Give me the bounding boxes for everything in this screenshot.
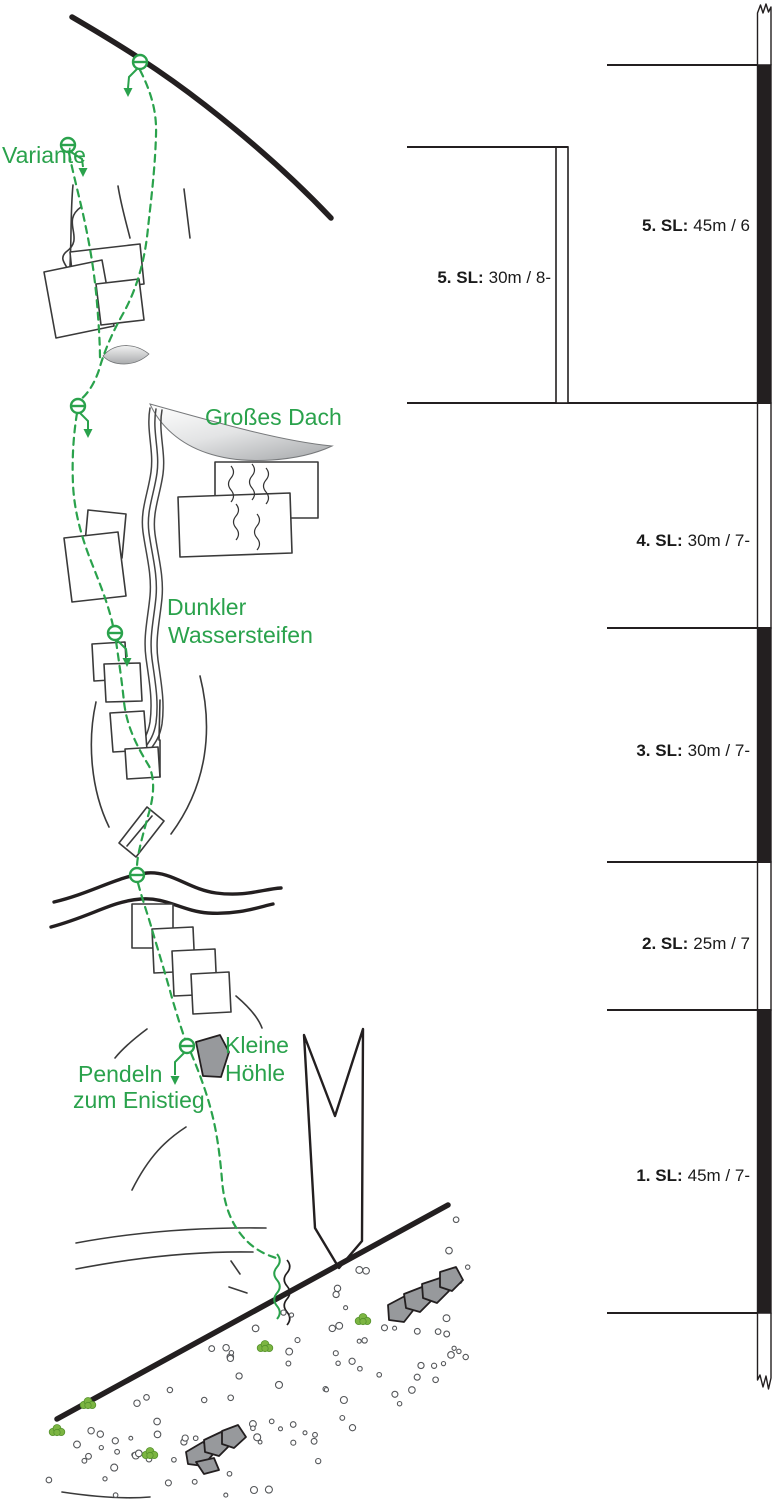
annotation-variante: Variante <box>2 142 86 168</box>
scree-dot <box>377 1373 382 1378</box>
scree-dot <box>291 1440 296 1445</box>
pitch-bar-segment <box>758 65 772 403</box>
arrow-down-icon <box>171 1053 185 1085</box>
scree-dot <box>129 1436 133 1440</box>
scree-dot <box>115 1449 120 1454</box>
scree-dot <box>349 1358 355 1364</box>
scree-dot <box>144 1395 150 1401</box>
annotation-kleine-hoehle: Kleine <box>225 1032 289 1058</box>
scree-dot <box>154 1431 161 1438</box>
scree-dot <box>286 1348 293 1355</box>
scree-dot <box>113 1493 118 1498</box>
annotation-kleine-hoehle: Höhle <box>225 1060 285 1086</box>
bar-bottom-break <box>758 1313 772 1389</box>
belay-ring-icon <box>133 55 148 69</box>
scree-dot <box>392 1391 398 1397</box>
pillar-outline <box>304 1029 363 1268</box>
rock-features <box>44 17 448 1498</box>
lower-band-line <box>76 1228 266 1243</box>
grass-tuft <box>142 1448 158 1459</box>
scree-dot <box>136 1450 143 1457</box>
scree-dot <box>349 1425 355 1431</box>
scree-dot <box>182 1435 188 1441</box>
scree-dot <box>418 1362 424 1368</box>
scree-dot <box>444 1331 450 1337</box>
scree-dot <box>333 1351 338 1356</box>
scree-dot <box>313 1432 318 1437</box>
lower-band-line <box>76 1252 253 1269</box>
scree-dot <box>441 1362 445 1366</box>
annotation-dunkler-wassersteifen: Dunkler <box>167 594 247 620</box>
scree-dot <box>227 1355 233 1361</box>
gully-contour <box>171 676 206 834</box>
crack-line <box>184 189 190 238</box>
scree-dot <box>433 1377 439 1383</box>
scree-dot <box>295 1338 300 1343</box>
scree-dot <box>414 1374 420 1380</box>
climbing-route <box>61 55 280 1319</box>
scree-dot <box>311 1438 317 1444</box>
scree-dot <box>167 1387 172 1392</box>
scree-dot <box>336 1322 343 1329</box>
scree-dot <box>224 1493 228 1497</box>
scree-dot <box>227 1472 232 1477</box>
scree-dot <box>448 1352 455 1359</box>
scree-dot <box>236 1373 242 1379</box>
boulder <box>440 1267 463 1291</box>
scree-dot <box>290 1422 296 1428</box>
scree-dot <box>443 1315 450 1322</box>
scree-dot <box>382 1325 388 1331</box>
rock-shade-wedge <box>103 346 149 364</box>
tilted-flake <box>119 807 164 857</box>
rock-block <box>110 711 147 752</box>
bottom-edge-line <box>62 1492 150 1498</box>
scree-dot <box>357 1339 361 1343</box>
scree-dot <box>193 1436 198 1441</box>
grass-tuft <box>257 1341 273 1352</box>
scree-dot <box>202 1397 207 1402</box>
variant-bar <box>556 147 568 403</box>
scree-dot <box>86 1453 92 1459</box>
scree-dot <box>276 1381 283 1388</box>
scree-dot <box>393 1326 397 1330</box>
rock-block <box>64 532 126 602</box>
scree-dot <box>269 1419 274 1424</box>
scree-dot <box>344 1306 348 1310</box>
pitch-bar-segment <box>758 628 772 862</box>
scree-dot <box>223 1345 229 1351</box>
scree-dot <box>99 1446 103 1450</box>
scree-dot <box>134 1400 140 1406</box>
contour-arc <box>132 1127 186 1190</box>
scree-dot <box>251 1487 258 1494</box>
scree-dot <box>340 1397 347 1404</box>
small-stroke <box>231 1261 240 1274</box>
belay-ring-icon <box>130 868 145 882</box>
pitch-label: 3. SL:30m / 7- <box>636 741 750 760</box>
boulder <box>196 1458 219 1474</box>
scree-dot <box>279 1427 283 1431</box>
scree-dot <box>397 1402 401 1406</box>
grass-tuft <box>355 1314 371 1325</box>
summit-ridge-line <box>72 17 331 218</box>
crack-line <box>118 186 130 238</box>
scree-dot <box>254 1434 261 1441</box>
scree-dot <box>329 1325 335 1331</box>
scree-dot <box>358 1366 363 1371</box>
bar-top-break <box>758 4 772 65</box>
scree-dot <box>286 1361 291 1366</box>
contour-arc <box>115 1029 147 1058</box>
pitch-scale-bar-variant: 5. SL:30m / 8- <box>407 147 568 403</box>
scree-dot <box>340 1416 345 1421</box>
climbing-topo-diagram: 5. SL:45m / 64. SL:30m / 7-3. SL:30m / 7… <box>0 0 772 1502</box>
scree-dot <box>336 1361 340 1365</box>
gully-contour <box>159 700 160 740</box>
annotation-grosses-dach: Großes Dach <box>205 404 342 430</box>
gully-contour <box>91 702 109 827</box>
boulder <box>222 1425 246 1448</box>
scree-dot <box>88 1428 94 1434</box>
scree-dot <box>409 1387 416 1394</box>
scree-dot <box>228 1395 234 1401</box>
scree-dot <box>414 1328 420 1334</box>
belay-ring-icon <box>180 1039 195 1053</box>
scree-dot <box>453 1217 459 1223</box>
pitch-label: 2. SL:25m / 7 <box>642 934 750 953</box>
rock-block <box>191 972 231 1014</box>
annotation-pendeln-zum-einstieg: Pendeln <box>78 1061 162 1087</box>
rock-block <box>125 747 160 779</box>
pitch-label: 1. SL:45m / 7- <box>636 1166 750 1185</box>
scree-dot <box>324 1388 328 1392</box>
scree-dot <box>281 1310 286 1315</box>
scree-dot <box>362 1338 367 1343</box>
scree-dot <box>229 1351 233 1355</box>
pitch-scale-bar-main: 5. SL:45m / 64. SL:30m / 7-3. SL:30m / 7… <box>407 65 771 1313</box>
scree-dot <box>316 1459 321 1464</box>
scree-dot <box>103 1477 107 1481</box>
scree-dot <box>432 1363 437 1368</box>
scree-dot <box>334 1285 340 1291</box>
annotation-dunkler-wassersteifen: Wassersteifen <box>168 622 313 648</box>
scree-dot <box>333 1291 339 1297</box>
pitch-bar-segment <box>758 862 772 1010</box>
scree-dot <box>74 1441 81 1448</box>
scree-dot <box>165 1480 171 1486</box>
pitch-label: 5. SL:30m / 8- <box>437 268 551 287</box>
scree-dot <box>289 1313 293 1317</box>
scree-dot <box>111 1464 118 1471</box>
scree-dot <box>112 1438 118 1444</box>
scree-dot <box>265 1486 272 1493</box>
scree-dot <box>97 1431 103 1437</box>
scree-dot <box>192 1479 197 1484</box>
scree-dot <box>457 1349 461 1353</box>
scree-dot <box>303 1431 307 1435</box>
scree-dot <box>252 1325 259 1332</box>
scree-dot <box>435 1329 441 1335</box>
rock-slab <box>178 493 292 557</box>
ledge-band-line <box>54 873 281 902</box>
scree-dot <box>209 1346 215 1352</box>
grass-tuft <box>49 1425 65 1436</box>
small-stroke <box>229 1287 247 1293</box>
scree-dot <box>452 1346 456 1350</box>
pitch-label: 4. SL:30m / 7- <box>636 531 750 550</box>
scree-dots-field <box>46 1217 470 1498</box>
pitch-bar-segment <box>758 403 772 628</box>
belay-ring-icon <box>71 399 86 413</box>
scree-dot <box>446 1247 453 1254</box>
pitch-bar-segment <box>758 1010 772 1313</box>
scree-dot <box>46 1477 52 1483</box>
pitch-label: 5. SL:45m / 6 <box>642 216 750 235</box>
scree-dot <box>463 1354 468 1359</box>
route-start-squiggle <box>274 1254 280 1319</box>
scree-dot <box>82 1458 87 1463</box>
contour-arc <box>236 996 262 1028</box>
scree-dot <box>172 1458 177 1463</box>
annotation-pendeln-zum-einstieg: zum Enistieg <box>73 1087 205 1113</box>
scree-dot <box>251 1426 256 1431</box>
scree-dot <box>466 1265 470 1269</box>
arrow-down-icon <box>124 69 138 97</box>
scree-dot <box>356 1267 363 1274</box>
arrow-down-icon <box>80 413 93 438</box>
scree-dot <box>363 1268 370 1275</box>
boulder-group <box>186 1267 463 1474</box>
scree-dot <box>154 1418 161 1425</box>
belay-ring-icon <box>108 626 123 640</box>
